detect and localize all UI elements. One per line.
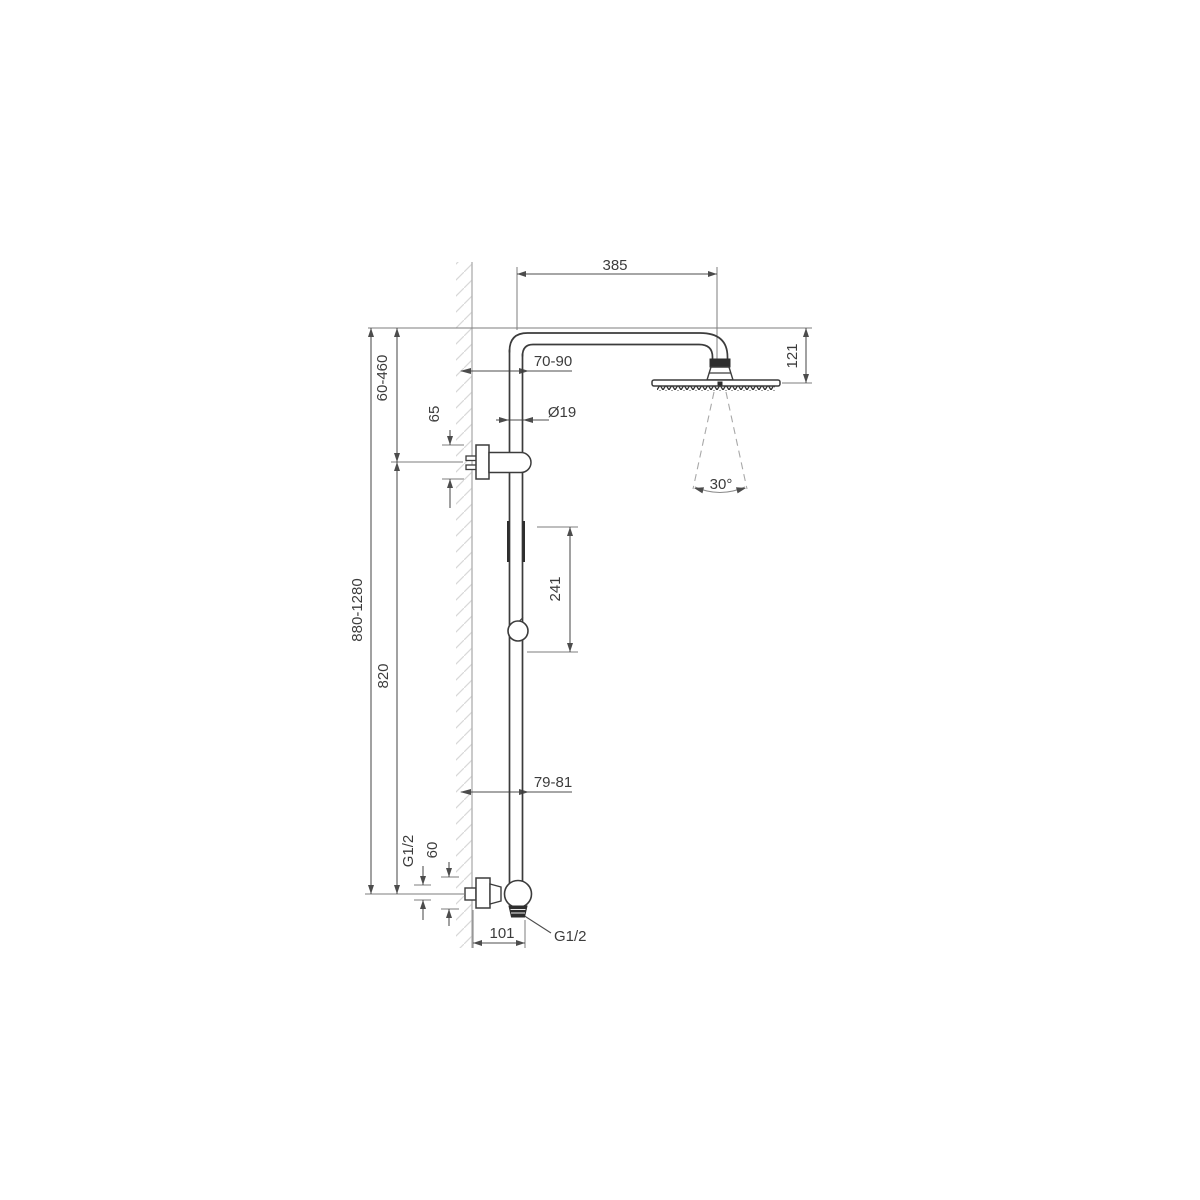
dim-label-bracket-height: 65 bbox=[426, 406, 443, 423]
arrow-left-icon bbox=[517, 271, 526, 277]
dim-label-inlet-thread: G1/2 bbox=[400, 835, 417, 868]
valve-body bbox=[505, 881, 532, 908]
slider-knob bbox=[508, 621, 528, 641]
dim-label-arm-reach: 385 bbox=[602, 257, 627, 274]
slider-holder bbox=[508, 618, 528, 642]
technical-drawing-page: 385 121 70-90 60-460 880-1280 820 65 bbox=[0, 0, 1200, 1200]
swivel-nut bbox=[710, 359, 730, 367]
bracket-wall-plate bbox=[476, 445, 489, 479]
dimensions: 385 121 70-90 60-460 880-1280 820 65 bbox=[349, 257, 809, 946]
dim-label-upper-adjust-range: 60-460 bbox=[374, 355, 391, 402]
bracket-arm bbox=[489, 453, 531, 473]
dim-label-wall-to-riser-top: 70-90 bbox=[534, 353, 572, 370]
wall-supply-stub bbox=[465, 888, 476, 900]
dim-label-riser-length: 820 bbox=[375, 663, 392, 688]
outlet-thread-g12 bbox=[509, 906, 527, 917]
dim-label-spray-angle: 30° bbox=[710, 476, 733, 493]
wall-bracket bbox=[466, 445, 531, 479]
head-center-joint bbox=[718, 382, 723, 386]
head-plate bbox=[652, 380, 780, 386]
arrow-right-icon bbox=[708, 271, 717, 277]
shower-system-dimension-drawing: 385 121 70-90 60-460 880-1280 820 65 bbox=[0, 0, 1200, 1200]
nozzle-face bbox=[657, 386, 775, 391]
riser-pipe bbox=[508, 350, 523, 883]
dim-label-wall-to-riser-bottom: 79-81 bbox=[534, 774, 572, 791]
arc-arrow-left-icon bbox=[693, 485, 704, 494]
wall bbox=[456, 262, 472, 948]
dim-label-inlet-height: 60 bbox=[424, 842, 441, 859]
wall-hatching bbox=[456, 262, 472, 948]
mixer-escutcheon bbox=[476, 878, 490, 908]
dim-label-mixer-depth: 101 bbox=[489, 925, 514, 942]
shower-head bbox=[652, 359, 780, 391]
dim-label-slider-range: 241 bbox=[547, 576, 564, 601]
dim-label-outlet-thread: G1/2 bbox=[554, 928, 587, 945]
dim-label-head-offset: 121 bbox=[784, 343, 801, 368]
arc-arrow-right-icon bbox=[736, 485, 747, 494]
mixer-valve bbox=[465, 878, 532, 917]
spray-cone: 30° bbox=[693, 392, 747, 493]
dim-label-overall-height-range: 880-1280 bbox=[349, 578, 366, 641]
dim-label-pipe-diameter: Ø19 bbox=[548, 404, 576, 421]
mixer-union-nut bbox=[490, 884, 501, 904]
